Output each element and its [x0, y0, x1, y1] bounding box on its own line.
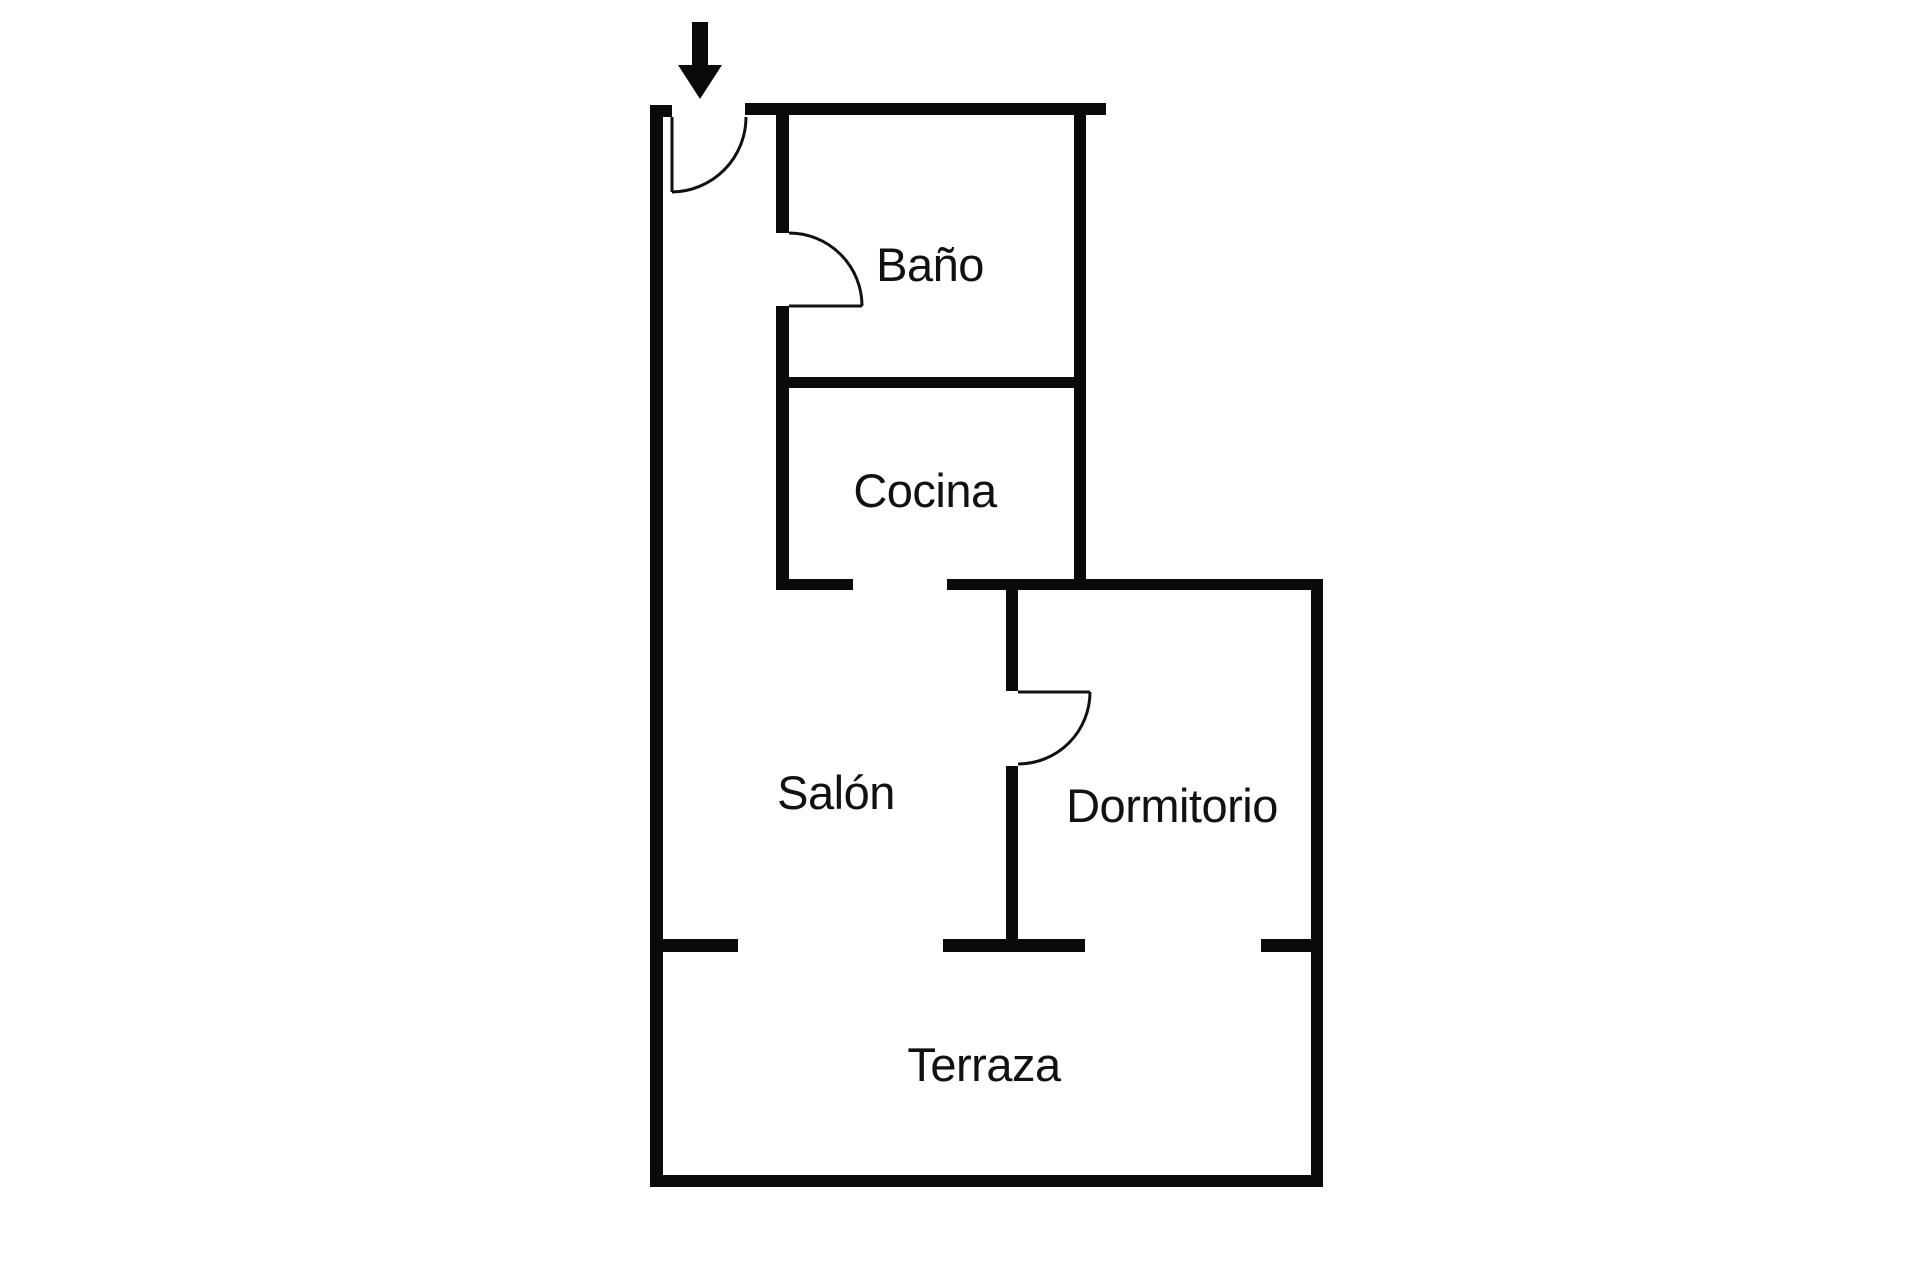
room-label-terraza: Terraza: [907, 1038, 1062, 1091]
wall-outer-bottom: [650, 1175, 1323, 1187]
wall-bano-left-upper: [776, 115, 789, 233]
entrance-arrow-icon: [678, 22, 722, 99]
dormitorio-door-arc: [1018, 692, 1090, 764]
room-label-bano: Baño: [876, 238, 984, 291]
wall-bano-cocina-right: [1074, 115, 1086, 580]
wall-bano-cocina-divider: [776, 377, 1086, 388]
room-label-dormitorio: Dormitorio: [1066, 779, 1278, 832]
floor-plan: Baño Cocina Salón Dormitorio Terraza: [0, 0, 1920, 1280]
bano-door-arc: [789, 233, 862, 306]
wall-outer-right: [1311, 579, 1323, 1187]
room-label-salon: Salón: [777, 766, 895, 819]
wall-terraza-divider-left: [650, 939, 738, 952]
floor-plan-canvas: Baño Cocina Salón Dormitorio Terraza: [0, 0, 1920, 1280]
wall-outer-top: [745, 103, 1106, 115]
wall-cocina-left: [776, 306, 789, 590]
room-label-cocina: Cocina: [853, 464, 998, 517]
wall-entrance-jamb: [663, 105, 672, 117]
entrance-door-arc: [672, 117, 746, 192]
wall-terraza-divider-right: [1261, 939, 1323, 952]
wall-cocina-south-stub: [776, 579, 853, 590]
wall-salon-dormitorio-divider-upper: [1006, 590, 1018, 691]
wall-dormitorio-top: [947, 579, 1323, 590]
wall-outer-left: [650, 105, 663, 1187]
wall-salon-dormitorio-divider-lower: [1006, 766, 1018, 939]
wall-terraza-divider-middle: [943, 939, 1085, 952]
